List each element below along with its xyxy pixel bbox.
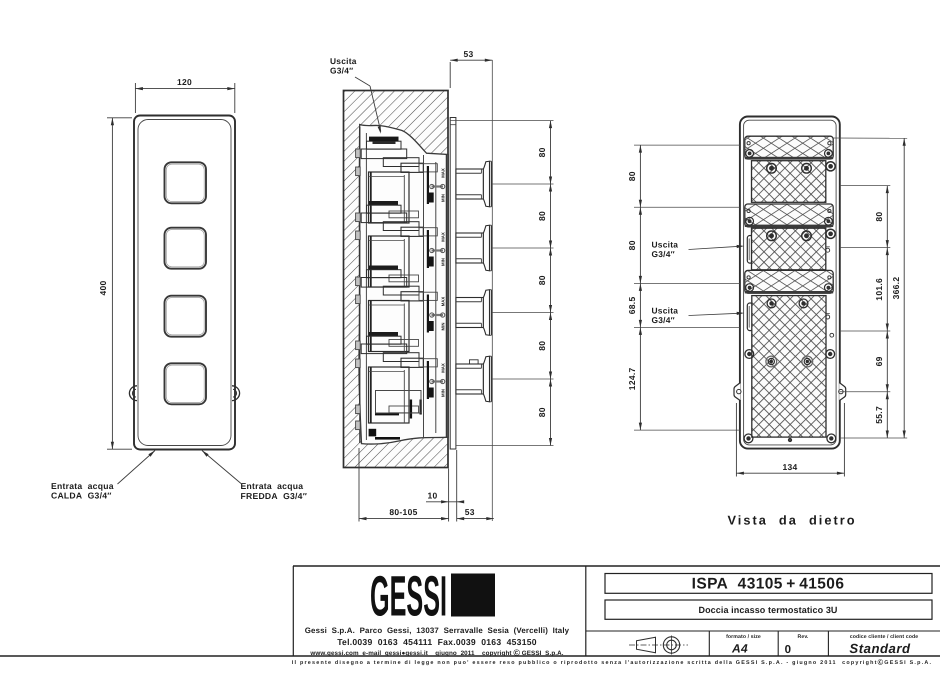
svg-text:Uscita: Uscita <box>652 306 679 316</box>
svg-text:GESSI: GESSI <box>370 565 447 629</box>
svg-text:80: 80 <box>874 212 884 222</box>
svg-text:53: 53 <box>463 49 473 59</box>
svg-text:Tel.0039 0163 454111 Fax.00: Tel.0039 0163 454111 Fax.0039 0163 45315… <box>337 637 537 647</box>
svg-text:codice cliente / client code: codice cliente / client code <box>850 634 919 640</box>
svg-text:120: 120 <box>177 77 192 87</box>
svg-text:MAX: MAX <box>441 232 446 242</box>
svg-text:Uscita: Uscita <box>330 56 357 66</box>
svg-text:Gessi S.p.A. Parco Gessi,: Gessi S.p.A. Parco Gessi, 13037 Serraval… <box>305 626 570 635</box>
svg-text:Il presente disegno a termine: Il presente disegno a termine di legge n… <box>292 659 932 666</box>
svg-text:80: 80 <box>537 211 547 221</box>
svg-text:Vista da dietro: Vista da dietro <box>727 513 856 528</box>
svg-text:80: 80 <box>537 275 547 285</box>
svg-text:80: 80 <box>627 240 637 250</box>
svg-text:CALDA G3/4″: CALDA G3/4″ <box>51 491 112 501</box>
svg-text:134: 134 <box>782 462 797 472</box>
svg-text:Entrata acqua: Entrata acqua <box>241 481 304 491</box>
svg-text:www.gessi.com e-mail gessi●g: www.gessi.com e-mail gessi●gessi.it giug… <box>309 649 563 657</box>
svg-text:MIN: MIN <box>441 258 446 266</box>
svg-text:124.7: 124.7 <box>627 367 637 390</box>
svg-text:68.5: 68.5 <box>627 297 637 315</box>
svg-text:Rev.: Rev. <box>798 634 809 640</box>
svg-text:MAX: MAX <box>441 297 446 307</box>
svg-text:G3/4″: G3/4″ <box>652 249 675 259</box>
svg-text:MAX: MAX <box>441 363 446 373</box>
svg-text:G3/4″: G3/4″ <box>652 315 675 325</box>
svg-text:80: 80 <box>537 147 547 157</box>
svg-text:80: 80 <box>537 341 547 351</box>
svg-text:Doccia incasso termostatico 3U: Doccia incasso termostatico 3U <box>698 605 837 615</box>
svg-text:400: 400 <box>98 280 108 295</box>
svg-text:0: 0 <box>785 644 792 656</box>
svg-text:80-105: 80-105 <box>389 507 417 517</box>
svg-text:101.6: 101.6 <box>874 278 884 301</box>
svg-text:Uscita: Uscita <box>652 240 679 250</box>
svg-text:A4: A4 <box>731 641 748 655</box>
svg-text:Entrata acqua: Entrata acqua <box>51 481 114 491</box>
svg-text:MIN: MIN <box>441 194 446 202</box>
svg-text:MIN: MIN <box>441 389 446 397</box>
svg-text:10: 10 <box>427 490 437 500</box>
svg-text:366.2: 366.2 <box>891 277 901 300</box>
svg-text:53: 53 <box>465 507 475 517</box>
svg-text:formato / size: formato / size <box>726 634 761 640</box>
svg-text:55.7: 55.7 <box>874 406 884 424</box>
svg-text:MAX: MAX <box>441 168 446 178</box>
svg-text:Standard: Standard <box>849 641 911 656</box>
svg-text:ISPA 43105 + 41506: ISPA 43105 + 41506 <box>692 576 845 593</box>
svg-text:FREDDA G3/4″: FREDDA G3/4″ <box>241 491 308 501</box>
svg-text:69: 69 <box>874 356 884 366</box>
svg-text:80: 80 <box>537 407 547 417</box>
svg-text:80: 80 <box>627 171 637 181</box>
svg-text:G3/4″: G3/4″ <box>330 66 353 76</box>
svg-text:MIN: MIN <box>441 323 446 331</box>
